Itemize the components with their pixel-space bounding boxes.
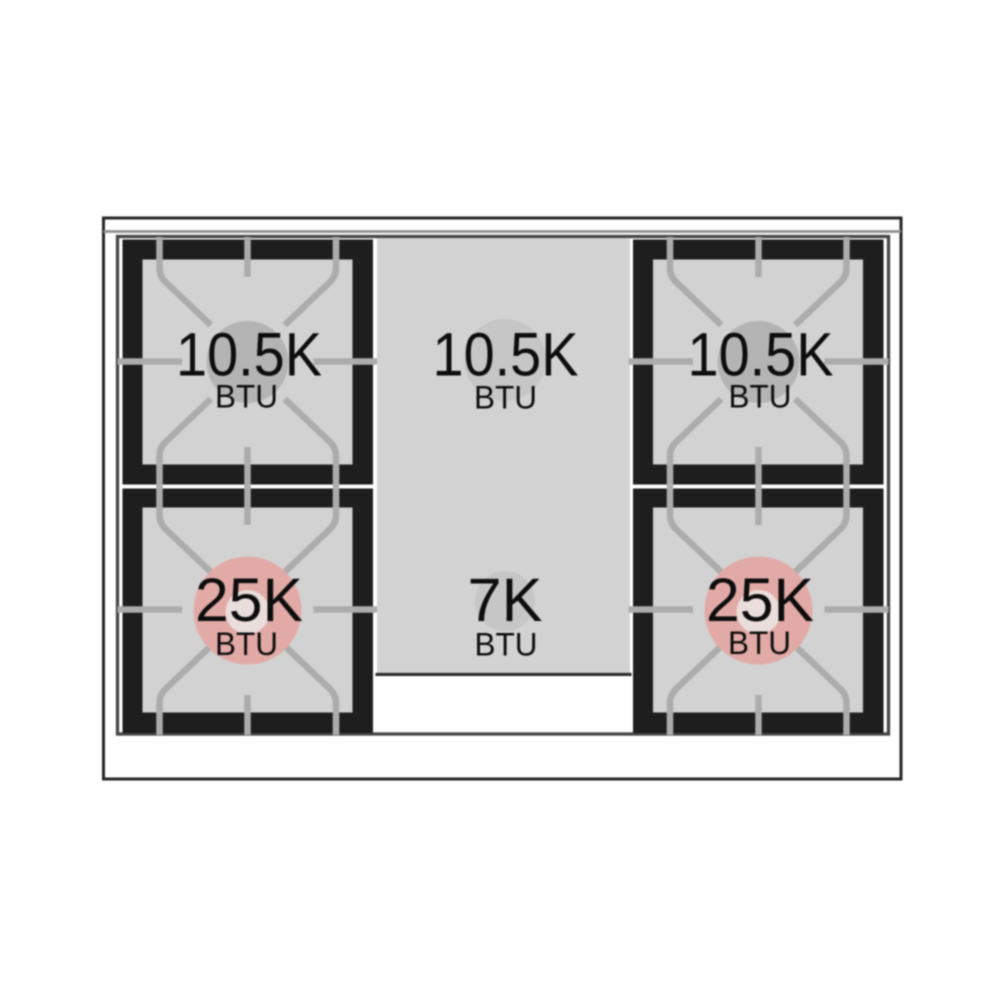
svg-text:BTU: BTU [215,378,278,415]
svg-text:BTU: BTU [474,379,537,416]
svg-text:BTU: BTU [215,625,278,662]
svg-text:BTU: BTU [728,624,791,661]
svg-text:BTU: BTU [729,378,792,415]
svg-text:BTU: BTU [475,626,538,663]
